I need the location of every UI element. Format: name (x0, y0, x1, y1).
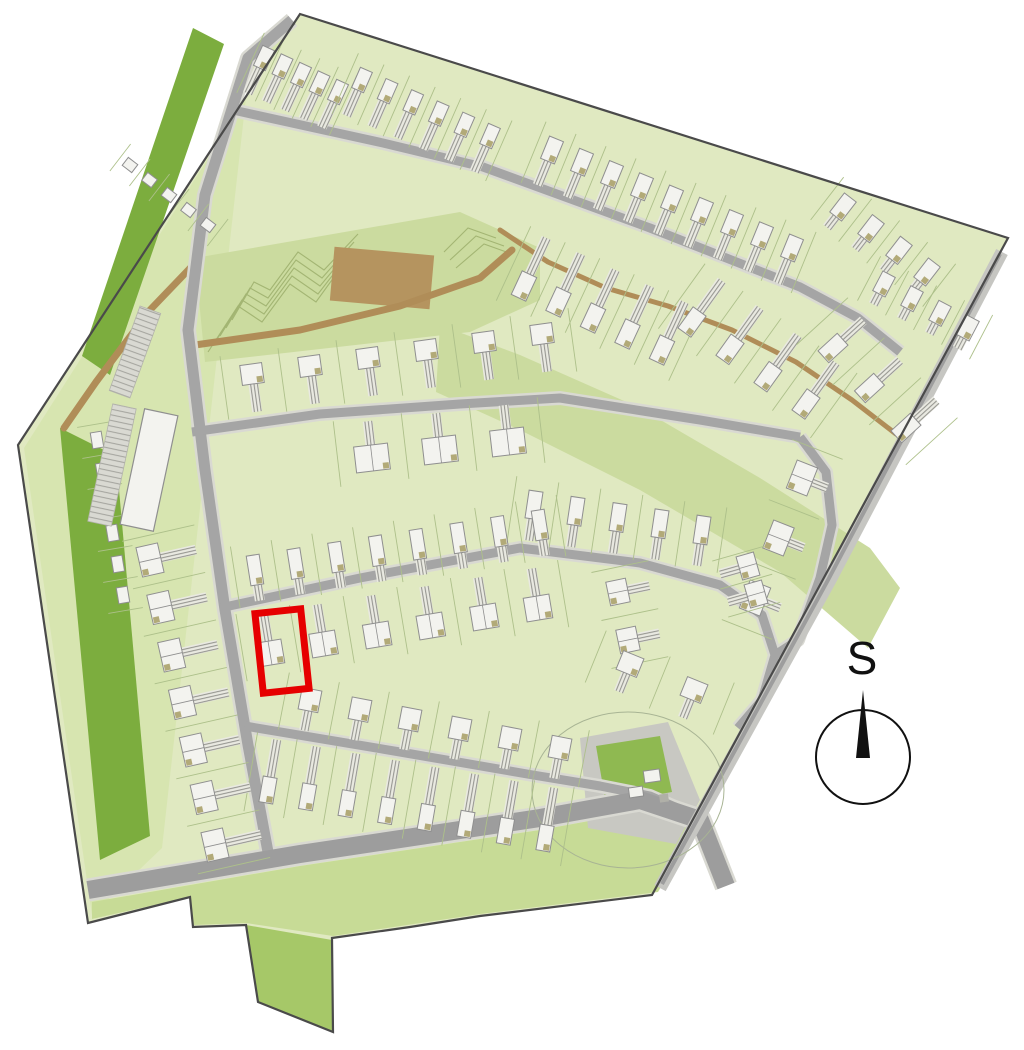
garage-accent (491, 620, 498, 627)
garage-accent (337, 564, 344, 571)
house-plot (110, 144, 145, 182)
garage-accent (419, 551, 426, 558)
house-footprint (448, 716, 472, 741)
garage-accent (314, 368, 321, 375)
house-footprint (298, 355, 323, 378)
house-footprint (111, 555, 124, 573)
garage-accent (700, 537, 707, 544)
house-footprint (498, 726, 522, 751)
garage-accent (311, 704, 318, 711)
house-footprint (472, 331, 497, 354)
house-footprint (548, 735, 572, 760)
house-footprint (348, 697, 372, 722)
garage-accent (561, 752, 568, 759)
garage-accent (543, 844, 550, 851)
garage-accent (361, 714, 368, 721)
garage-accent (266, 796, 273, 803)
garage-accent (616, 524, 623, 531)
garage-accent (296, 571, 303, 578)
utility-structure (659, 793, 669, 802)
garage-accent (256, 577, 263, 584)
garage-accent (503, 837, 510, 844)
house-footprint (106, 524, 119, 542)
garage-accent (430, 352, 437, 359)
garage-accent (546, 336, 553, 343)
house-footprint (116, 586, 129, 604)
garage-accent (541, 532, 548, 539)
utility-structure (628, 786, 643, 798)
garage-accent (461, 733, 468, 740)
south-spur (246, 925, 333, 1032)
garage-accent (384, 638, 391, 645)
house-footprint (398, 707, 422, 732)
house-footprint (90, 431, 103, 449)
house-footprint (356, 347, 381, 370)
house-footprint (240, 363, 265, 386)
compass-needle-icon (856, 690, 870, 758)
site-plan-canvas: S (0, 0, 1024, 1050)
garage-accent (545, 611, 552, 618)
garage-accent (330, 647, 337, 654)
garage-accent (378, 558, 385, 565)
garage-accent (383, 462, 390, 469)
compass: S (816, 632, 910, 804)
utility-structure (643, 769, 661, 783)
garage-accent (306, 803, 313, 810)
garage-accent (256, 376, 263, 383)
garage-accent (658, 531, 665, 538)
garage-accent (610, 598, 617, 605)
garage-accent (451, 454, 458, 461)
garage-accent (438, 629, 445, 636)
garage-accent (385, 816, 392, 823)
house-footprint (414, 339, 439, 362)
garage-accent (424, 823, 431, 830)
garage-accent (464, 830, 471, 837)
house-footprint (122, 157, 138, 172)
garage-accent (574, 518, 581, 525)
garage-accent (511, 743, 518, 750)
garage-accent (459, 545, 466, 552)
garage-accent (372, 360, 379, 367)
garage-accent (488, 344, 495, 351)
garage-accent (500, 538, 507, 545)
house-footprint (530, 323, 555, 346)
garage-accent (519, 446, 526, 453)
garage-accent (277, 656, 284, 663)
garage-accent (345, 810, 352, 817)
compass-label: S (847, 632, 878, 684)
garage-accent (411, 724, 418, 731)
site-plan: S (0, 0, 1024, 1050)
